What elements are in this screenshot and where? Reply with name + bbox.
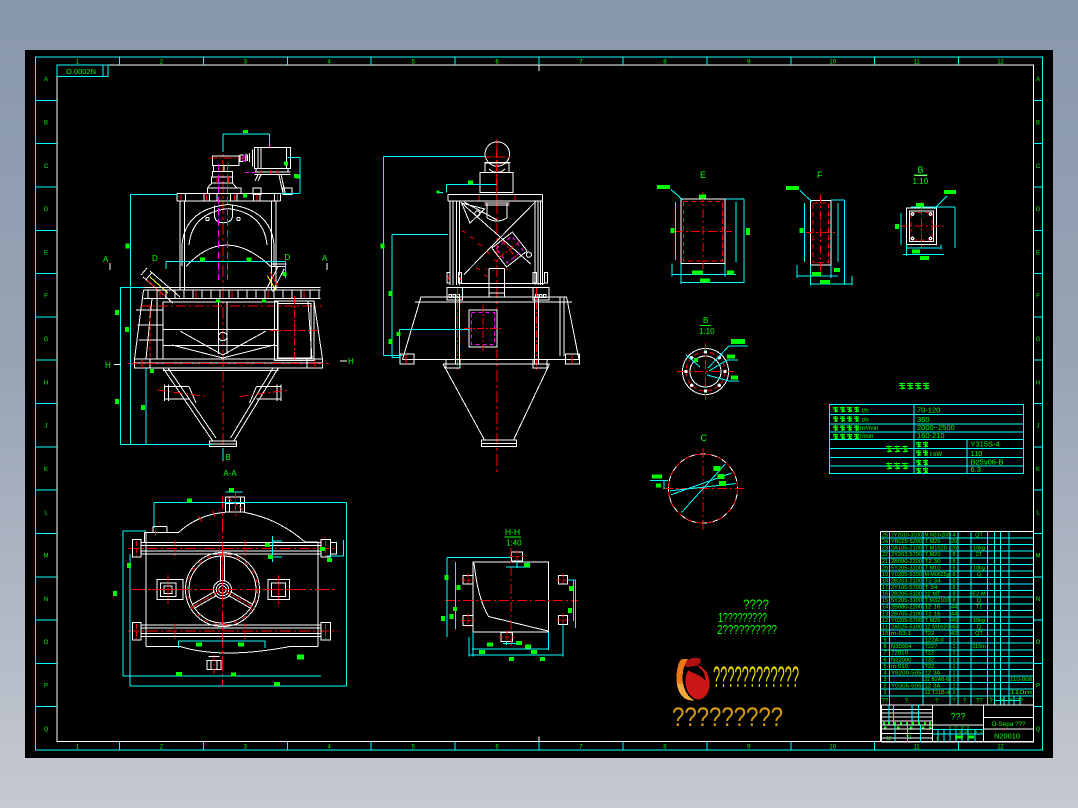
svg-text:C: C bbox=[1036, 164, 1041, 170]
svg-text:4: 4 bbox=[952, 532, 955, 538]
svg-text:1:10: 1:10 bbox=[699, 327, 715, 336]
svg-text:44: 44 bbox=[951, 611, 957, 617]
svg-text:Q: Q bbox=[977, 624, 982, 630]
svg-text:110m: 110m bbox=[1010, 690, 1033, 696]
svg-text:10kg: 10kg bbox=[973, 546, 985, 552]
svg-text:M: M bbox=[1036, 554, 1041, 560]
svg-text:K: K bbox=[1036, 467, 1040, 473]
svg-text:1: 1 bbox=[952, 684, 955, 690]
svg-text:8: 8 bbox=[952, 572, 955, 578]
svg-text:3: 3 bbox=[883, 677, 886, 683]
svg-text:1: 1 bbox=[952, 664, 955, 670]
svg-text:M M20x200: M M20x200 bbox=[925, 532, 950, 538]
svg-text:? ? ?: ? ? ? bbox=[999, 697, 1022, 702]
svg-text:H: H bbox=[44, 380, 48, 386]
svg-text:C: C bbox=[701, 433, 708, 443]
svg-text:???: ??? bbox=[950, 712, 965, 722]
svg-text:B: B bbox=[44, 120, 48, 126]
svg-text:N: N bbox=[44, 597, 48, 603]
svg-text:2: 2 bbox=[883, 684, 886, 690]
svg-text:B: B bbox=[1036, 120, 1040, 126]
svg-text:1: 1 bbox=[952, 677, 955, 683]
svg-text:160-210: 160-210 bbox=[917, 431, 945, 440]
svg-text:T22: T22 bbox=[925, 664, 935, 670]
svg-text:Q: Q bbox=[44, 727, 49, 733]
svg-text:7: 7 bbox=[883, 651, 886, 657]
svg-text:9: 9 bbox=[883, 638, 886, 644]
svg-text:C: C bbox=[44, 164, 49, 170]
svg-text:F: F bbox=[817, 170, 823, 180]
svg-text:H: H bbox=[348, 357, 354, 366]
svg-text:O: O bbox=[1036, 640, 1041, 646]
svg-text:T32: T32 bbox=[925, 657, 935, 663]
svg-text:12: 12 bbox=[886, 736, 892, 742]
svg-text:2A525-5100: 2A525-5100 bbox=[891, 624, 922, 630]
svg-text:22: 22 bbox=[882, 552, 888, 558]
svg-text:12 MT: 12 MT bbox=[925, 592, 942, 598]
svg-text:6.3: 6.3 bbox=[971, 465, 981, 474]
svg-text:11: 11 bbox=[914, 60, 921, 66]
svg-text:19: 19 bbox=[882, 572, 888, 578]
svg-text:2Y105-5700: 2Y105-5700 bbox=[891, 585, 922, 591]
svg-text:Y315S-4: Y315S-4 bbox=[971, 440, 1000, 449]
svg-text:44: 44 bbox=[951, 605, 957, 611]
svg-text:10kg: 10kg bbox=[973, 618, 985, 624]
svg-text:8: 8 bbox=[952, 552, 955, 558]
svg-text:O-Sepa ???: O-Sepa ??? bbox=[992, 721, 1026, 728]
svg-text:YB025-5200: YB025-5200 bbox=[891, 539, 922, 545]
svg-text:m-03-1: m-03-1 bbox=[891, 631, 911, 637]
svg-text:21: 21 bbox=[882, 559, 888, 565]
svg-text:??: ?? bbox=[882, 698, 889, 704]
svg-text:E2-M: E2-M bbox=[972, 592, 986, 598]
svg-text:2Y203-5700: 2Y203-5700 bbox=[891, 552, 922, 558]
svg-text:15: 15 bbox=[882, 598, 888, 604]
svg-text:12 16: 12 16 bbox=[925, 605, 941, 611]
svg-text:2T: 2T bbox=[976, 552, 983, 558]
svg-text:20: 20 bbox=[951, 539, 957, 545]
svg-text:1 2 | 1 2: 1 2 | 1 2 bbox=[958, 729, 985, 734]
svg-text:B: B bbox=[918, 165, 924, 175]
svg-text:110-008: 110-008 bbox=[1010, 677, 1032, 683]
svg-text:Y0205-5700: Y0205-5700 bbox=[891, 618, 922, 624]
svg-text:Q: Q bbox=[1036, 727, 1041, 733]
svg-text:??: ?? bbox=[976, 698, 983, 704]
svg-text:A: A bbox=[322, 254, 328, 263]
svg-text:M: M bbox=[44, 554, 49, 560]
svg-text:F: F bbox=[1036, 294, 1040, 300]
svg-text:1: 1 bbox=[883, 690, 886, 696]
svg-text:6: 6 bbox=[883, 657, 886, 663]
svg-text:20: 20 bbox=[882, 565, 888, 571]
svg-text:Y0205-5100: Y0205-5100 bbox=[891, 572, 922, 578]
svg-text:T M26: T M26 bbox=[925, 618, 941, 624]
svg-text:T M1620: T M1620 bbox=[925, 546, 947, 552]
svg-text:1: 1 bbox=[936, 737, 939, 743]
svg-text:T M10: T M10 bbox=[925, 565, 941, 571]
svg-text:QT: QT bbox=[975, 631, 983, 637]
svg-text:110: 110 bbox=[971, 449, 983, 458]
svg-text:1: 1 bbox=[952, 651, 955, 657]
svg-text:D: D bbox=[152, 254, 158, 263]
svg-text:G: G bbox=[1036, 337, 1041, 343]
svg-text:T22: T22 bbox=[925, 651, 935, 657]
svg-text:T22: T22 bbox=[925, 631, 935, 637]
svg-text:T2 16: T2 16 bbox=[925, 611, 941, 617]
svg-text:10: 10 bbox=[829, 745, 836, 751]
svg-text:1: 1 bbox=[952, 657, 955, 663]
svg-text:T1: T1 bbox=[976, 605, 982, 611]
svg-text:?1: ?1 bbox=[906, 735, 912, 741]
svg-text:2B080-2200: 2B080-2200 bbox=[891, 605, 922, 611]
svg-text:F: F bbox=[44, 294, 48, 300]
svg-text:A: A bbox=[103, 255, 109, 264]
svg-text:2B203-2100: 2B203-2100 bbox=[891, 578, 922, 584]
svg-text:B: B bbox=[703, 316, 708, 325]
svg-text:T 34: T 34 bbox=[925, 585, 938, 591]
svg-text:12: 12 bbox=[997, 745, 1004, 751]
svg-text:315m: 315m bbox=[972, 644, 986, 650]
svg-text:m-010: m-010 bbox=[891, 664, 908, 670]
svg-text:8: 8 bbox=[883, 644, 886, 650]
svg-text:2B205-5100: 2B205-5100 bbox=[891, 592, 922, 598]
svg-text:12 T21B-d: 12 T21B-d bbox=[925, 690, 950, 696]
svg-text:10: 10 bbox=[882, 631, 888, 637]
svg-text:????????????: ???????????? bbox=[713, 661, 799, 694]
svg-text:5: 5 bbox=[883, 664, 886, 670]
svg-text:10kg: 10kg bbox=[973, 565, 985, 571]
svg-text:24: 24 bbox=[882, 539, 888, 545]
svg-text:2A105-2100: 2A105-2100 bbox=[891, 546, 922, 552]
svg-text:N: N bbox=[1036, 597, 1040, 603]
svg-text:m³/min: m³/min bbox=[860, 426, 878, 432]
svg-text:H: H bbox=[1036, 380, 1040, 386]
svg-text:1: 1 bbox=[952, 670, 955, 676]
svg-text:N22000: N22000 bbox=[891, 657, 911, 663]
svg-text:1:40: 1:40 bbox=[506, 539, 522, 548]
svg-text:T M26: T M26 bbox=[925, 539, 941, 545]
svg-text:D: D bbox=[285, 253, 291, 262]
svg-text:T2 30: T2 30 bbox=[925, 559, 941, 565]
svg-text:13: 13 bbox=[882, 611, 888, 617]
svg-text:Q: Q bbox=[977, 598, 982, 604]
svg-text:P: P bbox=[1036, 684, 1040, 690]
svg-text:17: 17 bbox=[882, 585, 888, 591]
svg-text:1: 1 bbox=[952, 638, 955, 644]
svg-text:2B705-2100: 2B705-2100 bbox=[891, 611, 922, 617]
svg-text:12 M1620: 12 M1620 bbox=[925, 624, 950, 630]
svg-text:Q: Q bbox=[977, 572, 982, 578]
svg-text:2B080-2200: 2B080-2200 bbox=[891, 559, 922, 565]
svg-text:122A d: 122A d bbox=[925, 638, 944, 644]
svg-text:45: 45 bbox=[951, 624, 957, 630]
svg-text:18: 18 bbox=[882, 578, 888, 584]
svg-text:Y8200-505: Y8200-505 bbox=[891, 670, 922, 676]
svg-text:J: J bbox=[1037, 424, 1040, 430]
svg-text:8: 8 bbox=[952, 598, 955, 604]
svg-text:O 0002N: O 0002N bbox=[66, 67, 96, 76]
svg-text:K: K bbox=[44, 467, 48, 473]
svg-text:T M20: T M20 bbox=[925, 552, 941, 558]
svg-text:H: H bbox=[105, 361, 111, 370]
svg-text:t kW: t kW bbox=[930, 452, 942, 458]
svg-text:t/h: t/h bbox=[862, 418, 869, 424]
svg-text:25: 25 bbox=[882, 532, 888, 538]
svg-text:12: 12 bbox=[882, 618, 888, 624]
svg-text:10: 10 bbox=[829, 60, 836, 66]
svg-text:T2 34: T2 34 bbox=[925, 578, 941, 584]
svg-text:QT: QT bbox=[975, 532, 983, 538]
svg-text:8: 8 bbox=[952, 559, 955, 565]
svg-text:T M32100: T M32100 bbox=[925, 598, 950, 604]
svg-text:23: 23 bbox=[882, 546, 888, 552]
svg-text:E: E bbox=[44, 250, 48, 256]
svg-text:A-A: A-A bbox=[223, 469, 237, 478]
svg-text:8: 8 bbox=[952, 565, 955, 571]
svg-text:P: P bbox=[44, 684, 48, 690]
svg-text:11: 11 bbox=[914, 745, 921, 751]
svg-text:Y0305-505: Y0305-505 bbox=[891, 684, 922, 690]
svg-text:8: 8 bbox=[952, 592, 955, 598]
svg-text:2Y2010-3100: 2Y2010-3100 bbox=[891, 532, 922, 538]
svg-text:8: 8 bbox=[952, 578, 955, 584]
svg-text:D: D bbox=[1036, 207, 1041, 213]
svg-text:N30304: N30304 bbox=[891, 644, 911, 650]
svg-text:N20010: N20010 bbox=[994, 732, 1020, 741]
svg-text:H-H: H-H bbox=[505, 527, 520, 537]
svg-text:O: O bbox=[44, 640, 49, 646]
svg-text:45: 45 bbox=[951, 618, 957, 624]
svg-text:1: 1 bbox=[952, 690, 955, 696]
svg-text:G: G bbox=[44, 337, 49, 343]
svg-text:D: D bbox=[44, 207, 49, 213]
svg-text:E: E bbox=[700, 170, 706, 180]
svg-text:11: 11 bbox=[882, 624, 888, 630]
svg-text:1:10: 1:10 bbox=[913, 177, 929, 186]
svg-text:A: A bbox=[44, 77, 48, 83]
svg-text:M M0625g: M M0625g bbox=[925, 572, 950, 578]
svg-text:12: 12 bbox=[997, 60, 1004, 66]
svg-text:4: 4 bbox=[883, 670, 886, 676]
svg-text:5Y205-3100: 5Y205-3100 bbox=[891, 565, 922, 571]
svg-text:B: B bbox=[226, 453, 231, 462]
svg-text:1: 1 bbox=[952, 644, 955, 650]
svg-text:r/min: r/min bbox=[860, 434, 873, 440]
svg-text:A: A bbox=[1036, 77, 1040, 83]
svg-text:5Y205-3100: 5Y205-3100 bbox=[891, 598, 922, 604]
svg-text:16: 16 bbox=[882, 592, 888, 598]
svg-text:14: 14 bbox=[882, 605, 888, 611]
svg-text:70-120: 70-120 bbox=[917, 406, 940, 415]
svg-text:2??????????: 2?????????? bbox=[717, 622, 777, 637]
svg-text:22 B2AB-B: 22 B2AB-B bbox=[925, 677, 950, 683]
svg-text:J: J bbox=[45, 424, 48, 430]
svg-text:42: 42 bbox=[951, 631, 957, 637]
svg-text:t/h: t/h bbox=[862, 409, 869, 415]
svg-text:T22?: T22? bbox=[925, 644, 938, 650]
svg-text:12 3A: 12 3A bbox=[925, 684, 941, 690]
svg-text:72010: 72010 bbox=[891, 651, 908, 657]
svg-text:20: 20 bbox=[951, 546, 957, 552]
svg-text:8: 8 bbox=[952, 585, 955, 591]
svg-text:E: E bbox=[1036, 250, 1040, 256]
svg-text:12 3A: 12 3A bbox=[925, 670, 941, 676]
svg-text:?????????: ????????? bbox=[672, 702, 783, 732]
